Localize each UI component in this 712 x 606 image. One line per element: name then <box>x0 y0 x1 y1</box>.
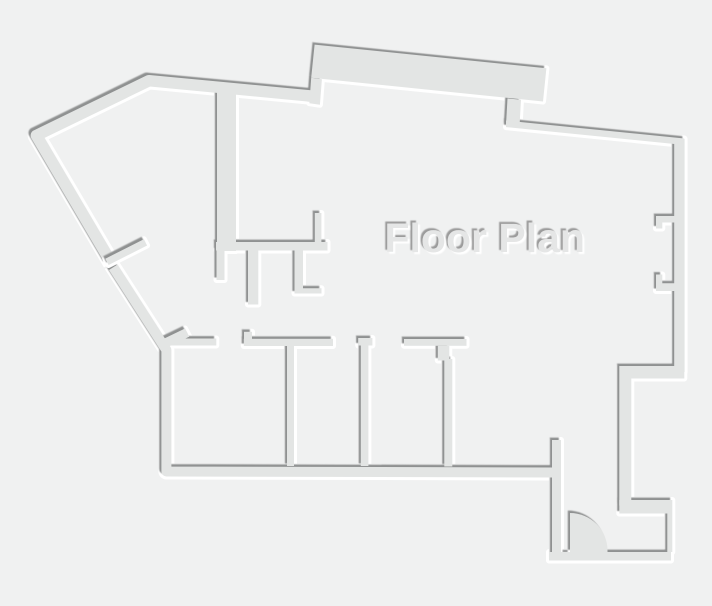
svg-text:Floor Plan: Floor Plan <box>385 215 585 261</box>
